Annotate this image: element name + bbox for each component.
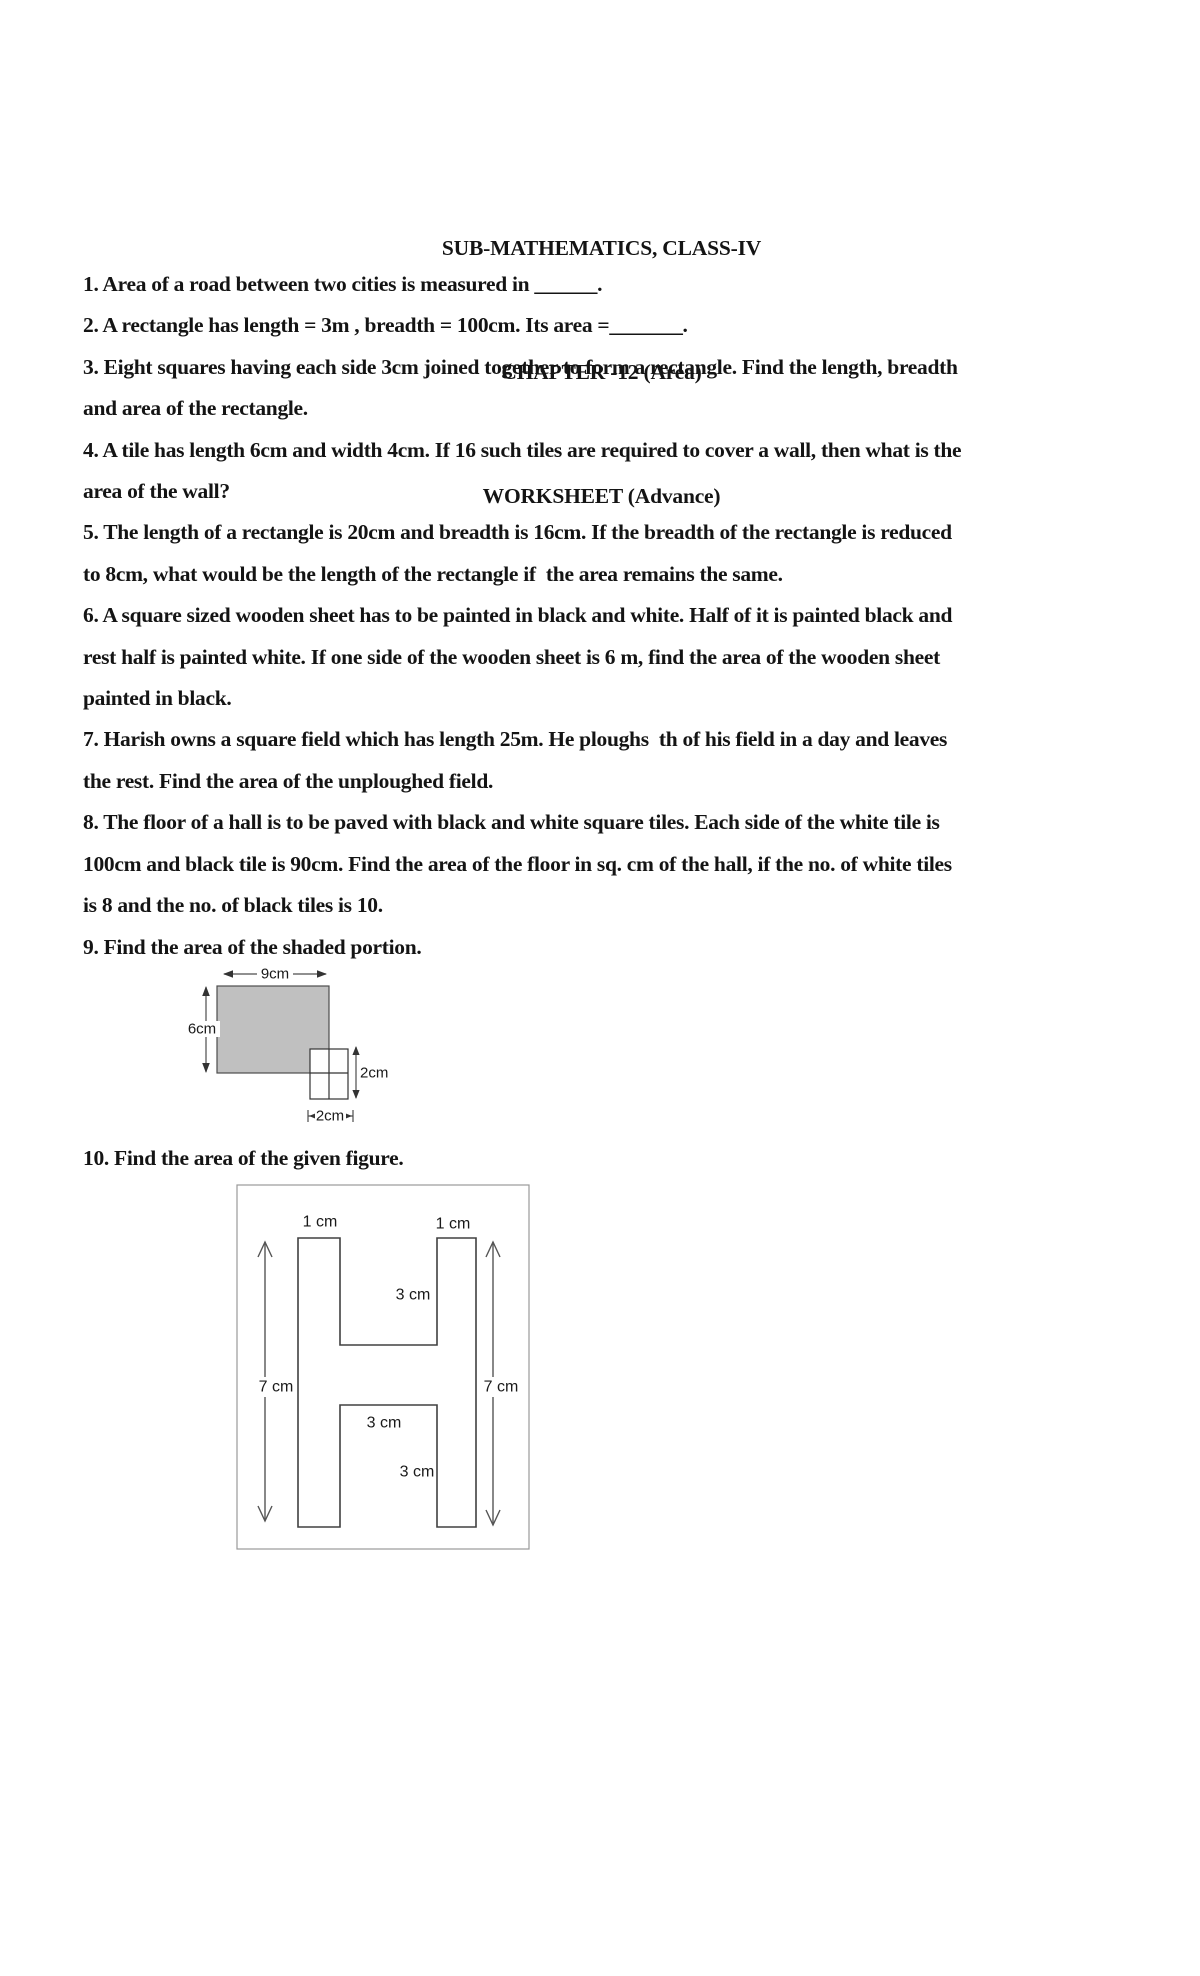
question-6-line-2: rest half is painted white. If one side … <box>83 637 1143 678</box>
arrowhead-down-icon <box>352 1090 359 1099</box>
right-height-label: 7 cm <box>484 1379 519 1396</box>
arrowhead-up-icon <box>352 1046 359 1055</box>
question-3-line-2: and area of the rectangle. <box>83 388 1143 429</box>
square-height-label: 2cm <box>360 1065 388 1082</box>
question-8-line-1: 8. The floor of a hall is to be paved wi… <box>83 802 1143 843</box>
arrowhead-right-icon <box>317 970 327 978</box>
top-right-width-label: 1 cm <box>436 1216 471 1233</box>
top-left-width-label: 1 cm <box>303 1214 338 1231</box>
question-8-line-2: 100cm and black tile is 90cm. Find the a… <box>83 844 1143 885</box>
arrowhead-up-icon <box>202 986 210 996</box>
figure-h-shape: 7 cm 7 cm 1 cm 1 cm 3 cm 3 cm 3 cm <box>230 1180 540 1560</box>
question-4-line-2: area of the wall? <box>83 471 1143 512</box>
worksheet-page: SUB-MATHEMATICS, CLASS-IV CHAPTER -12 (A… <box>0 0 1200 1976</box>
question-5-line-2: to 8cm, what would be the length of the … <box>83 554 1143 595</box>
crossbar-width-label: 3 cm <box>367 1415 402 1432</box>
question-8-line-3: is 8 and the no. of black tiles is 10. <box>83 885 1143 926</box>
figure-shaded-rectangle: 9cm 6cm 2cm 2cm <box>180 960 395 1130</box>
upper-gap-label: 3 cm <box>396 1287 431 1304</box>
h-shape-outline <box>298 1238 476 1527</box>
question-2-line: 2. A rectangle has length = 3m , breadth… <box>83 305 1143 346</box>
doc-title: SUB-MATHEMATICS, CLASS-IV <box>83 228 1120 269</box>
question-5-line-1: 5. The length of a rectangle is 20cm and… <box>83 512 1143 553</box>
questions-block: 1. Area of a road between two cities is … <box>83 264 1143 968</box>
question-10-line: 10. Find the area of the given figure. <box>83 1138 1143 1179</box>
arrowhead-down-icon <box>202 1063 210 1073</box>
question-3-line-1: 3. Eight squares having each side 3cm jo… <box>83 347 1143 388</box>
rect-width-label: 9cm <box>261 966 289 983</box>
question-6-line-3: painted in black. <box>83 678 1143 719</box>
question-7-line-2: the rest. Find the area of the unploughe… <box>83 761 1143 802</box>
lower-gap-label: 3 cm <box>400 1464 435 1481</box>
question-7-line-1: 7. Harish owns a square field which has … <box>83 719 1143 760</box>
left-height-label: 7 cm <box>259 1379 294 1396</box>
question-4-line-1: 4. A tile has length 6cm and width 4cm. … <box>83 430 1143 471</box>
rect-height-label: 6cm <box>188 1021 216 1038</box>
question-6-line-1: 6. A square sized wooden sheet has to be… <box>83 595 1143 636</box>
arrowhead-left-icon <box>223 970 233 978</box>
square-width-label: 2cm <box>316 1108 344 1125</box>
question-1-line: 1. Area of a road between two cities is … <box>83 264 1143 305</box>
